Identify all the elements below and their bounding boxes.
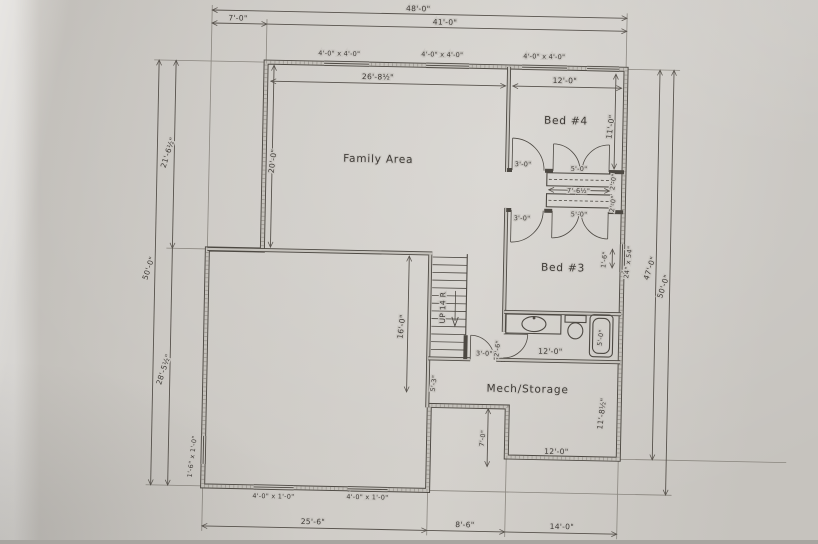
dim-right-inner: 47'-0" [642,255,658,281]
dim-stair-run: 16'-0" [395,314,407,339]
blueprint-photo: UP 14 R Family Area Bed #4 B [0,0,818,540]
dim-mech-door: 3'-0" [476,349,493,357]
dim-closet-bot: 5'-0" [571,210,588,218]
dim-mech-width: 12'-0" [544,447,569,456]
room-label-family-area: Family Area [343,153,413,166]
doors [470,137,609,362]
dim-top-left: 7'-0" [228,13,247,22]
stairs-label: UP 14 R [438,292,448,324]
window-label-top-1: 4'-0" x 4'-0" [318,49,360,58]
dim-family-depth: 20'-0" [267,148,279,173]
toilet-bowl [568,323,583,339]
dim-mech-east: 11'-8½" [595,397,608,430]
dim-family-width: 26'-8½" [362,72,394,82]
dim-window-offset: 1'-6" [599,251,609,269]
dim-right-overall: 50'-0" [655,273,671,299]
floor-plan-drawing: UP 14 R Family Area Bed #4 B [0,0,818,540]
dim-top-right: 41'-0" [433,17,458,26]
window-label-bottom-2: 4'-0" x 1'-0" [346,493,388,502]
dim-closet-top: 5'-0" [571,165,588,173]
extension-lines [145,4,795,540]
dim-closet-depth-b: 2'-0" [608,195,618,213]
dimension-labels: 48'-0" 7'-0" 41'-0" 50'-0" 21'-6½" 28'-5… [136,0,677,533]
dim-closet-mid: 7'-6½" [567,187,590,195]
dim-bed4-width: 12'-0" [553,76,578,85]
window-label-left: 1'-6" x 1'-0" [186,435,199,478]
window-label-bottom-1: 4'-0" x 1'-0" [252,492,294,501]
stairs: UP 14 R [431,257,467,350]
dim-left-overall: 50'-0" [141,255,157,281]
room-label-bed4: Bed #4 [544,115,588,128]
dimension-lines [150,9,675,535]
dim-tub-length: 5'-0" [596,329,606,347]
toilet-tank [565,315,586,322]
stair-direction-arrow [455,291,456,321]
room-label-mech-storage: Mech/Storage [486,383,568,397]
window-label-top-2: 4'-0" x 4'-0" [421,50,463,59]
dim-bath-door: 2'-6" [492,340,502,358]
dim-top-overall: 48'-0" [406,4,431,13]
dim-bottom-right: 14'-0" [550,522,575,531]
room-label-bed3: Bed #3 [541,262,585,275]
dim-bed3-door: 3'-0" [514,214,531,222]
dim-bottom-left: 25'-6" [301,517,326,526]
dim-bottom-middle: 8'-6" [455,520,474,529]
window-label-top-3: 4'-0" x 4'-0" [523,52,565,61]
dim-bed4-door: 3'-0" [515,160,532,168]
dim-notch-depth: 7'-0" [478,430,488,448]
dim-bath-width: 12'-0" [538,347,563,356]
dim-mech-west: 5'-3" [429,375,439,393]
dim-closet-depth-a: 2'-0" [608,173,618,191]
